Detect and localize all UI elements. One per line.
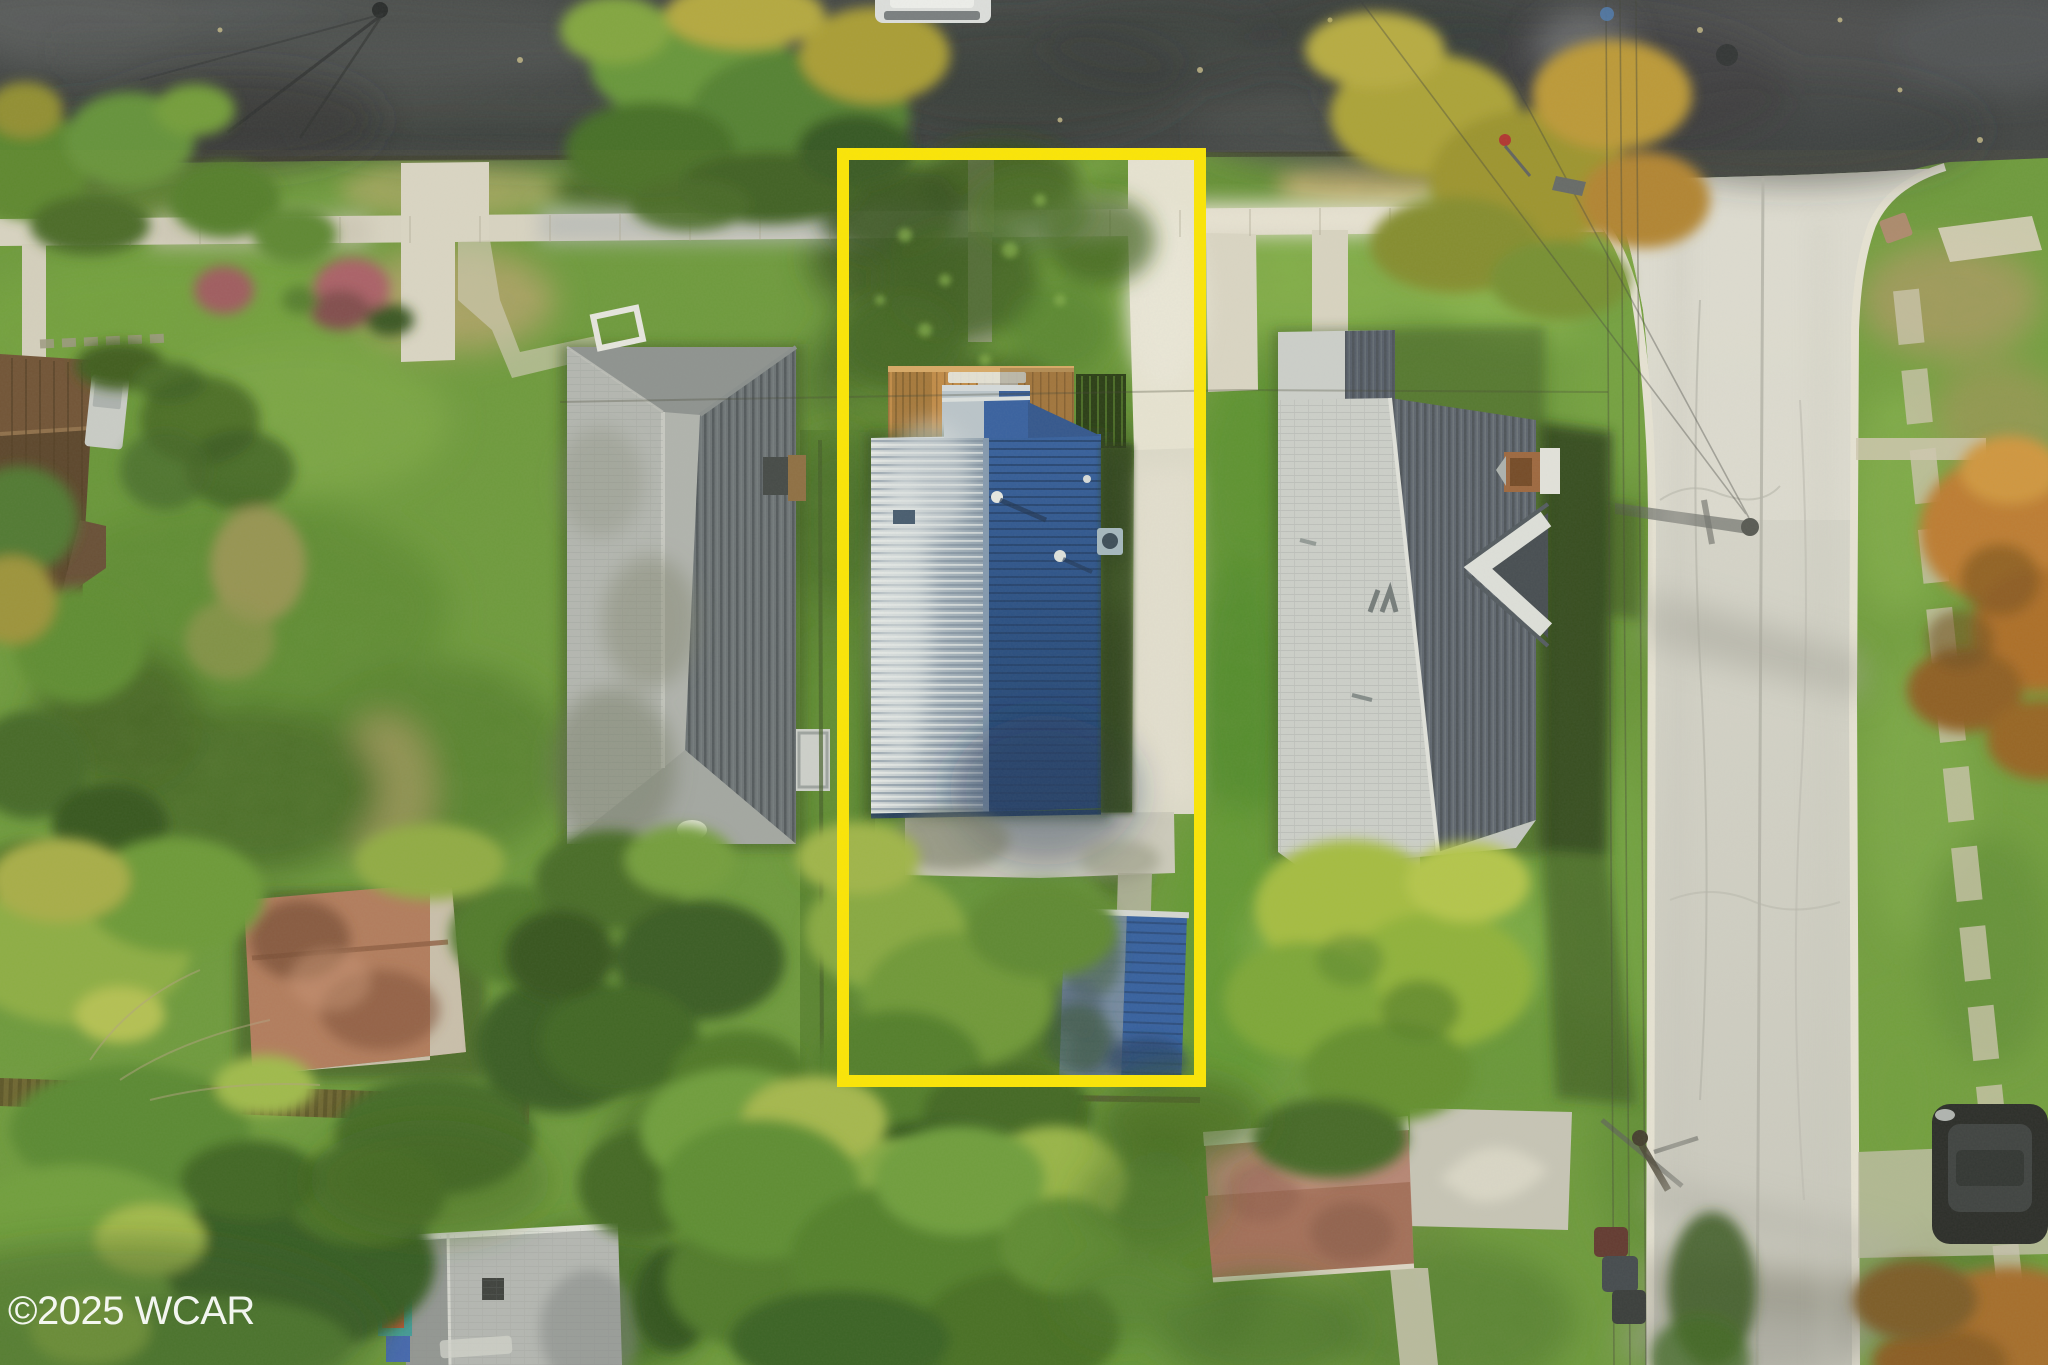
svg-text:©2025 WCAR: ©2025 WCAR <box>8 1289 255 1333</box>
